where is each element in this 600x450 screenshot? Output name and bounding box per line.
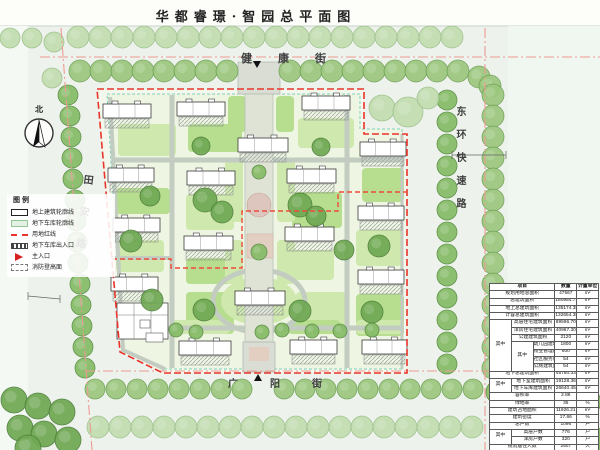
tree-highlight	[266, 419, 276, 429]
table-cell: 计容总建筑面积	[490, 313, 555, 320]
tree-highlight	[398, 102, 412, 116]
tree-highlight	[93, 63, 103, 73]
residential-building	[103, 101, 151, 128]
kindergarten-building	[117, 303, 168, 342]
tree-highlight	[72, 63, 82, 73]
tree-highlight	[440, 115, 449, 124]
tree-highlight	[356, 29, 366, 39]
tree-highlight	[66, 172, 75, 181]
table-cell: 320	[555, 437, 577, 444]
tree-highlight	[25, 31, 34, 40]
tree-highlight	[244, 419, 254, 429]
tree-highlight	[5, 391, 17, 403]
tree-highlight	[378, 29, 388, 39]
table-row: 其中高层户数776户	[490, 429, 599, 436]
tree-highlight	[440, 159, 449, 168]
tree-highlight	[198, 63, 208, 73]
tree-highlight	[114, 63, 124, 73]
table-cell: 计量单位	[577, 284, 599, 291]
tree-highlight	[195, 140, 203, 148]
table-cell: 幼儿园建筑面积	[533, 342, 555, 349]
residential-building	[358, 267, 404, 294]
table-cell: m²	[577, 349, 599, 356]
tree-highlight	[440, 357, 449, 366]
tree-highlight	[92, 29, 102, 39]
tree-highlight	[47, 35, 56, 44]
table-cell: 其中	[490, 378, 512, 393]
legend-item-building: 地上建筑轮廓线	[11, 207, 111, 218]
tree-highlight	[444, 29, 454, 39]
tree-highlight	[135, 63, 145, 73]
table-cell: 建筑密度	[490, 415, 555, 422]
tree-highlight	[191, 327, 197, 333]
tree-highlight	[144, 292, 154, 302]
legend-item-fire: 消防登高面	[11, 262, 111, 273]
table-row: 项目数量计量单位	[490, 284, 599, 291]
table-cell: 数量	[555, 284, 577, 291]
lawn-patch	[276, 96, 294, 132]
table-cell: 其中	[490, 320, 512, 371]
table-cell: 绿地率	[490, 400, 555, 407]
tree-highlight	[420, 90, 430, 100]
tree-highlight	[219, 63, 229, 73]
tree-highlight	[485, 171, 495, 181]
main-entrance-icon	[15, 253, 23, 261]
tree-highlight	[136, 29, 146, 39]
tree-highlight	[214, 382, 223, 391]
tree-highlight	[361, 382, 370, 391]
table-cell: m²	[577, 364, 599, 371]
tree-highlight	[172, 382, 181, 391]
tree-highlight	[65, 151, 74, 160]
tree-highlight	[253, 246, 260, 253]
tree-highlight	[310, 419, 320, 429]
fire-surface-icon	[11, 264, 28, 271]
tree-highlight	[382, 382, 391, 391]
tree-highlight	[222, 419, 232, 429]
circular-plaza	[247, 193, 271, 217]
tree-highlight	[254, 167, 260, 173]
tree-highlight	[442, 419, 452, 429]
lawn-patch	[362, 168, 404, 202]
tree-highlight	[88, 382, 97, 391]
table-cell: 1800	[555, 342, 577, 349]
table-cell: 35	[555, 400, 577, 407]
tree-highlight	[70, 29, 80, 39]
table-cell: 54	[555, 356, 577, 363]
table-cell: %	[577, 400, 599, 407]
table-cell: 89596.70	[555, 320, 577, 327]
table-row: 容积率2.86	[490, 393, 599, 400]
table-cell: m²	[577, 305, 599, 312]
table-cell: 135174.38	[555, 305, 577, 312]
south-gate-paving	[249, 347, 269, 361]
table-cell: 高层住宅建筑面积	[511, 320, 555, 327]
tree-highlight	[200, 419, 210, 429]
tree-highlight	[440, 335, 449, 344]
tree-highlight	[366, 63, 376, 73]
table-cell: m²	[577, 356, 599, 363]
table-row: 绿地率35%	[490, 400, 599, 407]
tree-highlight	[387, 63, 397, 73]
table-cell: m²	[577, 320, 599, 327]
tree-highlight	[11, 419, 23, 431]
table-cell: 规划居住人数	[490, 444, 555, 450]
legend-item-ramp: 地下车库出入口	[11, 240, 111, 251]
tree-highlight	[123, 233, 133, 243]
residential-building	[235, 288, 285, 315]
tree-highlight	[315, 141, 323, 149]
table-cell: 洋房住宅建筑面积	[511, 327, 555, 334]
street-name-right: 东环快速路	[452, 106, 467, 221]
tree-highlight	[450, 63, 460, 73]
tree-highlight	[440, 137, 449, 146]
table-cell: 公建建筑面积	[511, 335, 555, 342]
tree-highlight	[440, 93, 449, 102]
tree-highlight	[73, 277, 82, 286]
table-cell: 户	[577, 429, 599, 436]
lawn-patch	[118, 124, 176, 156]
table-cell: m²	[577, 386, 599, 393]
north-label: 北	[18, 104, 60, 115]
tree-highlight	[440, 291, 449, 300]
table-cell: 132654.38	[555, 313, 577, 320]
table-cell: 19128.36	[555, 378, 577, 385]
residential-building	[179, 338, 231, 365]
economic-indicator-table: 项目数量计量单位 规划用地总面积47567m²总建筑面积180954.71m²地…	[489, 283, 599, 450]
tree-highlight	[180, 29, 190, 39]
tree-highlight	[440, 181, 449, 190]
legend-panel: 图例 地上建筑轮廓线 地下车库轮廓线 用地红线 地下车库出入口 主入口 消防登高…	[7, 194, 115, 277]
legend-item-entry: 主入口	[11, 251, 111, 262]
legend-title: 图例	[13, 197, 111, 204]
table-cell: 47567	[555, 291, 577, 298]
tree-highlight	[112, 419, 122, 429]
residential-building	[290, 337, 337, 364]
table-cell: 户	[577, 422, 599, 429]
north-arrow-icon	[25, 119, 53, 147]
tree-highlight	[471, 69, 481, 79]
table-cell: 40967.30	[555, 327, 577, 334]
residential-building	[302, 93, 350, 120]
table-cell: m²	[577, 327, 599, 334]
tree-highlight	[156, 63, 166, 73]
tree-highlight	[367, 325, 373, 331]
table-row: 建筑占地面积11926.21m²	[490, 408, 599, 415]
tree-highlight	[151, 382, 160, 391]
table-cell: 54	[555, 364, 577, 371]
tree-highlight	[364, 304, 374, 314]
table-cell: m²	[577, 408, 599, 415]
table-cell: 2.86	[555, 393, 577, 400]
residential-building	[285, 224, 334, 251]
tree-highlight	[130, 382, 139, 391]
tree-highlight	[90, 419, 100, 429]
tree-highlight	[177, 63, 187, 73]
tree-highlight	[337, 243, 346, 252]
table-cell: 600	[555, 349, 577, 356]
tree-highlight	[193, 382, 202, 391]
legend-label: 地下车库出入口	[32, 243, 74, 249]
tree-highlight	[440, 313, 449, 322]
tree-highlight	[373, 99, 385, 111]
table-cell: 776	[555, 429, 577, 436]
table-cell: 2507	[555, 444, 577, 450]
legend-item-garage: 地下车库轮廓线	[11, 218, 111, 229]
tree-highlight	[45, 71, 54, 80]
tree-highlight	[464, 419, 474, 429]
tree-highlight	[335, 326, 341, 332]
table-row: 其中地下室建筑面积19128.36m²	[490, 378, 599, 385]
table-cell: 社区服务用房面积	[533, 356, 555, 363]
legend-label: 主入口	[32, 254, 50, 260]
table-cell: m²	[577, 371, 599, 378]
site-plan-page: 华都睿璟·智园总平面图 健康街 广阳街 田安路 东环快速路 北 图例 地上建筑轮…	[0, 0, 600, 450]
building-outline-icon	[11, 209, 28, 216]
tree-highlight	[466, 382, 475, 391]
tree-highlight	[109, 382, 118, 391]
table-cell: 1096	[555, 422, 577, 429]
tree-highlight	[292, 303, 302, 313]
page-title: 华都睿璟·智园总平面图	[0, 6, 512, 25]
tree-highlight	[485, 213, 495, 223]
table-cell: 人	[577, 444, 599, 450]
table-cell: 地下室建筑面积	[511, 378, 555, 385]
table-cell: 建筑占地面积	[490, 408, 555, 415]
table-cell: m²	[577, 313, 599, 320]
table-cell: 户	[577, 437, 599, 444]
garage-outline-icon	[11, 220, 28, 227]
tree-highlight	[143, 189, 152, 198]
table-cell: 45780.33	[555, 371, 577, 378]
tree-highlight	[422, 29, 432, 39]
legend-label: 用地红线	[32, 232, 56, 238]
tree-highlight	[440, 203, 449, 212]
legend-label: 地下车库轮廓线	[32, 221, 74, 227]
table-cell: m²	[577, 298, 599, 305]
tree-highlight	[246, 29, 256, 39]
table-row: 地下总建筑面积45780.33m²	[490, 371, 599, 378]
tree-highlight	[257, 327, 263, 333]
tree-highlight	[178, 419, 188, 429]
legend-label: 地上建筑轮廓线	[32, 210, 74, 216]
table-cell: 其中	[511, 342, 533, 371]
tree-highlight	[440, 247, 449, 256]
tree-highlight	[158, 29, 168, 39]
table-cell: 180954.71	[555, 298, 577, 305]
garage-entrance-icon	[11, 243, 28, 249]
table-cell: 物业管理用房面积	[533, 349, 555, 356]
table-cell: m²	[577, 378, 599, 385]
tree-highlight	[408, 63, 418, 73]
table-cell	[577, 393, 599, 400]
tree-highlight	[403, 382, 412, 391]
table-cell: m²	[577, 335, 599, 342]
table-row: 总建筑面积180954.71m²	[490, 298, 599, 305]
tree-highlight	[371, 238, 381, 248]
table-cell: m²	[577, 291, 599, 298]
tree-highlight	[485, 129, 495, 139]
tree-highlight	[485, 234, 495, 244]
tree-highlight	[224, 29, 234, 39]
residential-building	[177, 99, 225, 126]
tree-highlight	[398, 419, 408, 429]
table-body: 规划用地总面积47567m²总建筑面积180954.71m²地上总建筑面积135…	[490, 291, 599, 450]
table-cell: 总户数	[490, 422, 555, 429]
table-cell: 容积率	[490, 393, 555, 400]
street-name-bottom: 广阳街	[228, 375, 354, 390]
tree-highlight	[440, 269, 449, 278]
tree-highlight	[114, 29, 124, 39]
table-cell: 2120	[555, 335, 577, 342]
table-row: 规划用地总面积47567m²	[490, 291, 599, 298]
tree-highlight	[400, 29, 410, 39]
residential-building	[362, 337, 407, 364]
tree-highlight	[156, 419, 166, 429]
tree-highlight	[485, 87, 495, 97]
tree-highlight	[196, 302, 206, 312]
tree-highlight	[440, 225, 449, 234]
table-row: 规划居住人数2507人	[490, 444, 599, 450]
tree-highlight	[354, 419, 364, 429]
table-row: 其中高层住宅建筑面积89596.70m²	[490, 320, 599, 327]
tree-highlight	[307, 326, 313, 332]
lawn-patch	[228, 96, 246, 132]
tree-highlight	[376, 419, 386, 429]
legend-label: 消防登高面	[32, 265, 62, 271]
table-cell: 规划用地总面积	[490, 291, 555, 298]
table-cell: 项目	[490, 284, 555, 291]
table-cell: 地上总建筑面积	[490, 305, 555, 312]
tree-highlight	[334, 29, 344, 39]
table-cell: 11926.21	[555, 408, 577, 415]
tree-highlight	[197, 192, 208, 203]
street-name-top: 健康街	[241, 50, 352, 66]
tree-highlight	[35, 425, 47, 437]
table-cell: %	[577, 415, 599, 422]
tree-highlight	[420, 419, 430, 429]
table-row: 计容总建筑面积132654.38m²	[490, 313, 599, 320]
tree-highlight	[292, 197, 303, 208]
table-cell: 总建筑面积	[490, 298, 555, 305]
tree-highlight	[445, 382, 454, 391]
residential-building	[360, 139, 406, 166]
tree-highlight	[214, 204, 224, 214]
residential-building	[287, 166, 336, 193]
table-row: 地上总建筑面积135174.38m²	[490, 305, 599, 312]
tree-highlight	[59, 431, 71, 443]
tree-highlight	[312, 29, 322, 39]
tree-highlight	[277, 325, 283, 331]
north-label-wrap: 北	[18, 104, 60, 115]
tree-highlight	[202, 29, 212, 39]
table-cell: 公厕建筑面积	[533, 364, 555, 371]
table-cell: 地下车库建筑面积	[511, 386, 555, 393]
residential-building	[358, 203, 404, 230]
tree-highlight	[3, 31, 12, 40]
tree-highlight	[485, 255, 495, 265]
tree-highlight	[288, 419, 298, 429]
tree-highlight	[29, 397, 41, 409]
residential-building	[238, 135, 288, 162]
legend-item-redline: 用地红线	[11, 229, 111, 240]
table-cell: m²	[577, 342, 599, 349]
tree-highlight	[53, 403, 65, 415]
residential-building	[184, 233, 233, 260]
tree-highlight	[268, 29, 278, 39]
tree-highlight	[134, 419, 144, 429]
table-row: 建筑密度17.66%	[490, 415, 599, 422]
table-cell: 高层户数	[511, 429, 555, 436]
table-cell: 其中	[490, 429, 512, 444]
tree-highlight	[424, 382, 433, 391]
table-cell: 洋房户数	[511, 437, 555, 444]
tree-highlight	[332, 419, 342, 429]
table-cell: 26640.45	[555, 386, 577, 393]
table-cell: 地下总建筑面积	[490, 371, 555, 378]
tree-highlight	[290, 29, 300, 39]
tree-highlight	[429, 63, 439, 73]
table-row: 总户数1096户	[490, 422, 599, 429]
table-header: 项目数量计量单位	[490, 284, 599, 291]
tree-highlight	[485, 192, 495, 202]
tree-highlight	[171, 325, 177, 331]
red-line-icon	[11, 234, 28, 236]
table-cell: 17.66	[555, 415, 577, 422]
tree-highlight	[485, 108, 495, 118]
